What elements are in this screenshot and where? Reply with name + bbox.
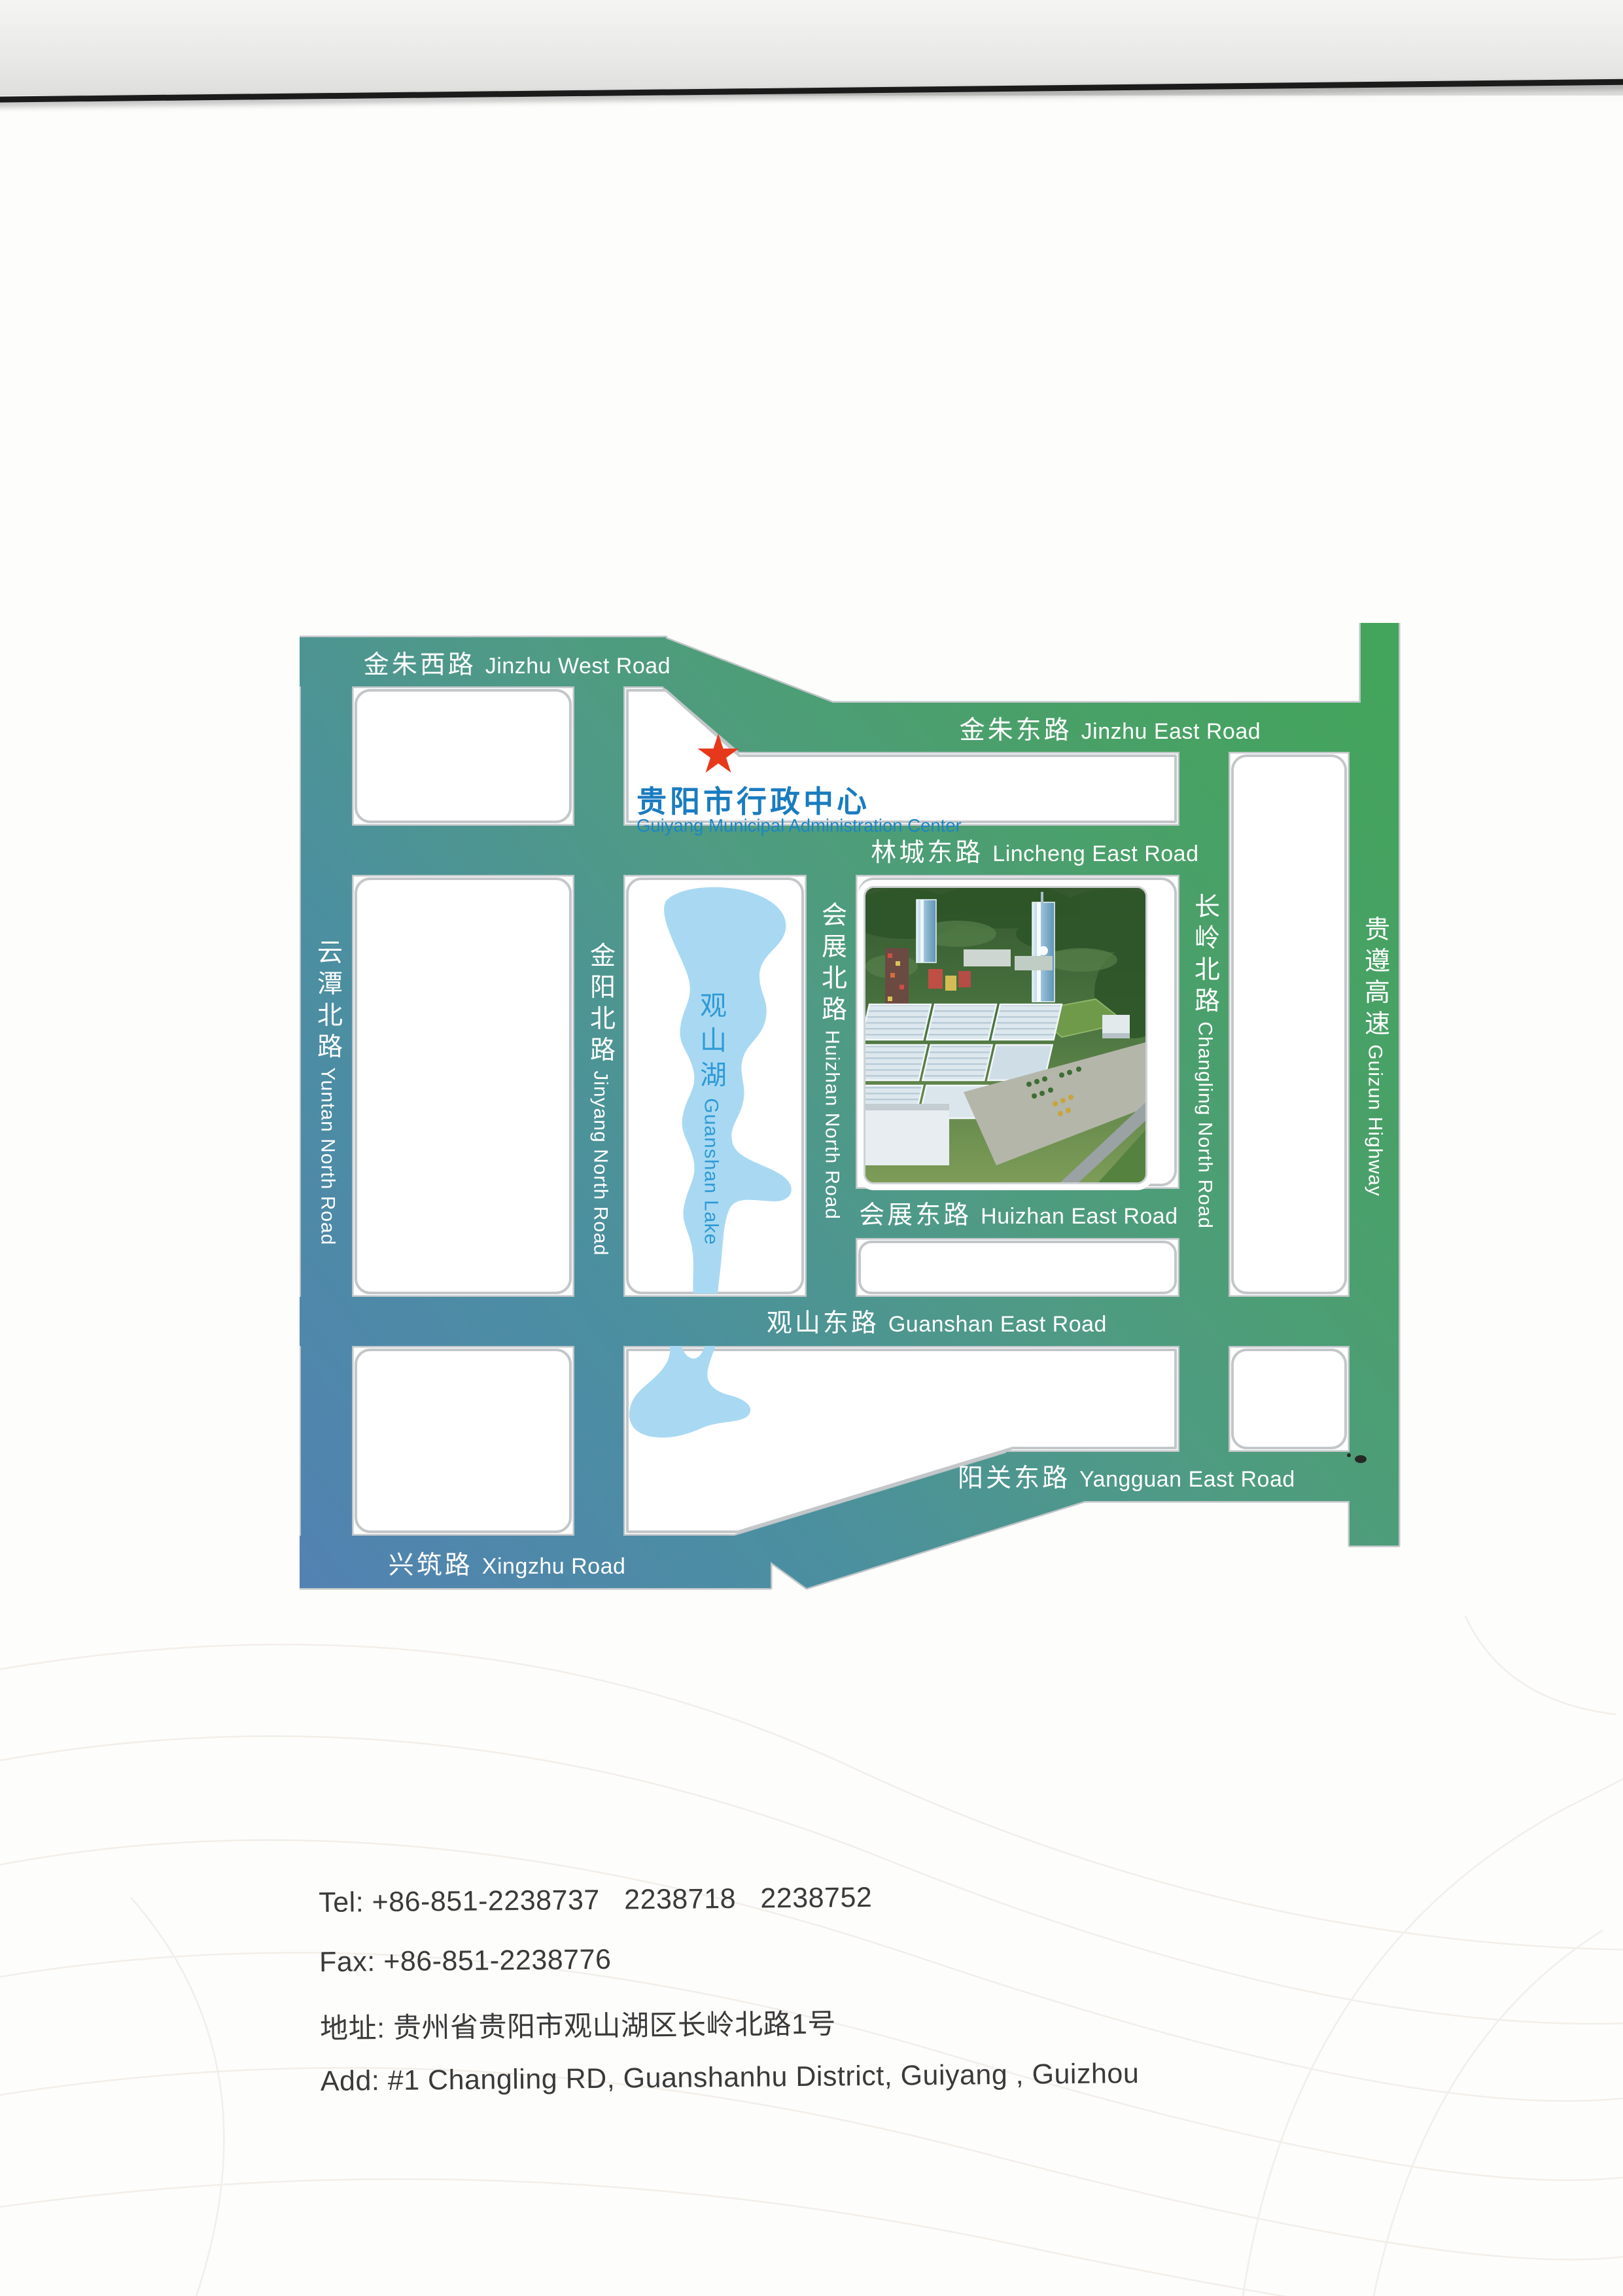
- location-map: 金朱西路Jinzhu West Road 金朱东路Jinzhu East Roa…: [300, 623, 1412, 1598]
- address-en-label: Add:: [321, 2065, 380, 2097]
- contact-address-en-line: Add: #1 Changling RD, Guanshanhu Distric…: [321, 2058, 1140, 2125]
- label-guizun-zh: 贵遵高速: [1361, 916, 1389, 1042]
- label-lake-en: Guanshan Lake: [701, 1098, 722, 1245]
- label-yangguan-east-road: 阳关东路Yangguan East Road: [946, 1446, 1295, 1506]
- fax-label: Fax:: [319, 1946, 375, 1978]
- label-jinzhu-west-en: Jinzhu West Road: [485, 654, 671, 679]
- label-yuntan-zh: 云潭北路: [314, 939, 342, 1065]
- label-huizhan-east-zh: 会展东路: [859, 1201, 971, 1229]
- label-huizhan-north-zh: 会展北路: [818, 902, 846, 1027]
- contact-tel-line: Tel: +86-851-2238737 2238718 2238752: [319, 1879, 1138, 1947]
- aerial-photo: [864, 886, 1147, 1184]
- label-jinzhu-east-road: 金朱东路Jinzhu East Road: [948, 698, 1261, 758]
- label-jinzhu-west-zh: 金朱西路: [364, 651, 476, 679]
- label-yuntan-en: Yuntan North Road: [317, 1067, 339, 1245]
- label-lincheng-east-zh: 林城东路: [871, 839, 983, 867]
- label-changling-zh: 长岭北路: [1191, 893, 1219, 1019]
- label-huizhan-north-en: Huizhan North Road: [822, 1030, 843, 1220]
- label-jinzhu-west-road: 金朱西路Jinzhu West Road: [352, 633, 671, 693]
- address-value: 贵州省贵阳市观山湖区长岭北路1号: [393, 2008, 836, 2043]
- tel-label: Tel:: [319, 1886, 364, 1918]
- red-star-icon: ★: [694, 724, 742, 786]
- label-jinyang-en: Jinyang North Road: [590, 1070, 612, 1256]
- scanned-page: { "map": { "marker": { "star_glyph": "★"…: [0, 0, 1623, 2296]
- address-en-value: #1 Changling RD, Guanshanhu District, Gu…: [388, 2058, 1140, 2096]
- contact-fax-line: Fax: +86-851-2238776: [319, 1939, 1138, 2006]
- fax-value: +86-851-2238776: [383, 1944, 612, 1977]
- label-guanshan-east-en: Guanshan East Road: [888, 1312, 1107, 1337]
- label-guanshan-east-road: 观山东路Guanshan East Road: [755, 1291, 1107, 1351]
- label-xingzhu-en: Xingzhu Road: [482, 1554, 626, 1579]
- label-changling-en: Changling North Road: [1195, 1021, 1216, 1229]
- label-yangguan-east-en: Yangguan East Road: [1079, 1467, 1295, 1492]
- label-huizhan-north-road: 会展北路 Huizhan North Road: [809, 890, 856, 1220]
- address-label: 地址:: [320, 2013, 385, 2045]
- tel-value: +86-851-2238737 2238718 2238752: [372, 1882, 872, 1918]
- label-guanshan-lake: 观山湖 Guanshan Lake: [687, 980, 735, 1245]
- label-huizhan-east-en: Huizhan East Road: [981, 1204, 1178, 1229]
- label-lincheng-east-en: Lincheng East Road: [992, 841, 1198, 866]
- label-changling-north-road: 长岭北路 Changling North Road: [1182, 881, 1229, 1229]
- label-guizun-en: Guizun Highway: [1365, 1044, 1386, 1196]
- label-jinzhu-east-en: Jinzhu East Road: [1081, 719, 1261, 744]
- contact-address-line: 地址: 贵州省贵阳市观山湖区长岭北路1号: [320, 1998, 1139, 2066]
- label-jinyang-north-road: 金阳北路 Jinyang North Road: [578, 930, 624, 1256]
- contact-block: Tel: +86-851-2238737 2238718 2238752 Fax…: [319, 1879, 1140, 2125]
- label-jinzhu-east-zh: 金朱东路: [960, 716, 1072, 745]
- marker-title-en: Guiyang Municipal Administration Center: [637, 815, 962, 836]
- label-huizhan-east-road: 会展东路Huizhan East Road: [847, 1183, 1178, 1243]
- label-lake-zh: 观山湖: [696, 991, 726, 1095]
- label-yangguan-east-zh: 阳关东路: [958, 1464, 1070, 1492]
- label-jinyang-zh: 金阳北路: [587, 942, 615, 1068]
- label-guanshan-east-zh: 观山东路: [767, 1309, 879, 1337]
- label-xingzhu-zh: 兴筑路: [389, 1551, 473, 1580]
- label-yuntan-north-road: 云潭北路 Yuntan North Road: [305, 927, 351, 1245]
- label-xingzhu-road: 兴筑路Xingzhu Road: [377, 1533, 625, 1593]
- label-guizun-highway: 贵遵高速 Guizun Highway: [1352, 904, 1399, 1197]
